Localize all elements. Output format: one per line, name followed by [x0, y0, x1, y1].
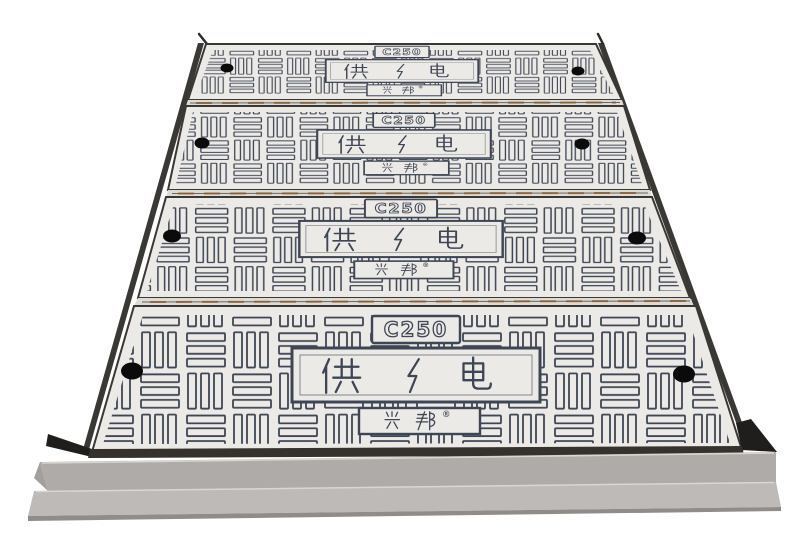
cover-assembly-illustration: C250: [0, 0, 800, 533]
cover-panel-2: [168, 106, 650, 190]
bolt-hole: [628, 232, 646, 245]
product-photo: C250: [0, 0, 800, 533]
cover-panel-3: [138, 197, 690, 298]
bolt-hole: [121, 363, 143, 380]
bolt-hole: [673, 366, 695, 383]
bolt-hole: [221, 64, 234, 73]
cover-panel-1: [188, 44, 622, 100]
frame-back-left-corner: [199, 34, 207, 44]
cover-panel-4: [92, 306, 742, 452]
panel-joint: [166, 190, 652, 197]
bolt-hole: [163, 230, 181, 243]
bolt-hole: [572, 67, 585, 76]
bolt-hole: [575, 139, 590, 150]
bolt-hole: [195, 138, 210, 149]
panel-joint: [134, 298, 694, 306]
frame-back-right-corner: [598, 34, 603, 44]
